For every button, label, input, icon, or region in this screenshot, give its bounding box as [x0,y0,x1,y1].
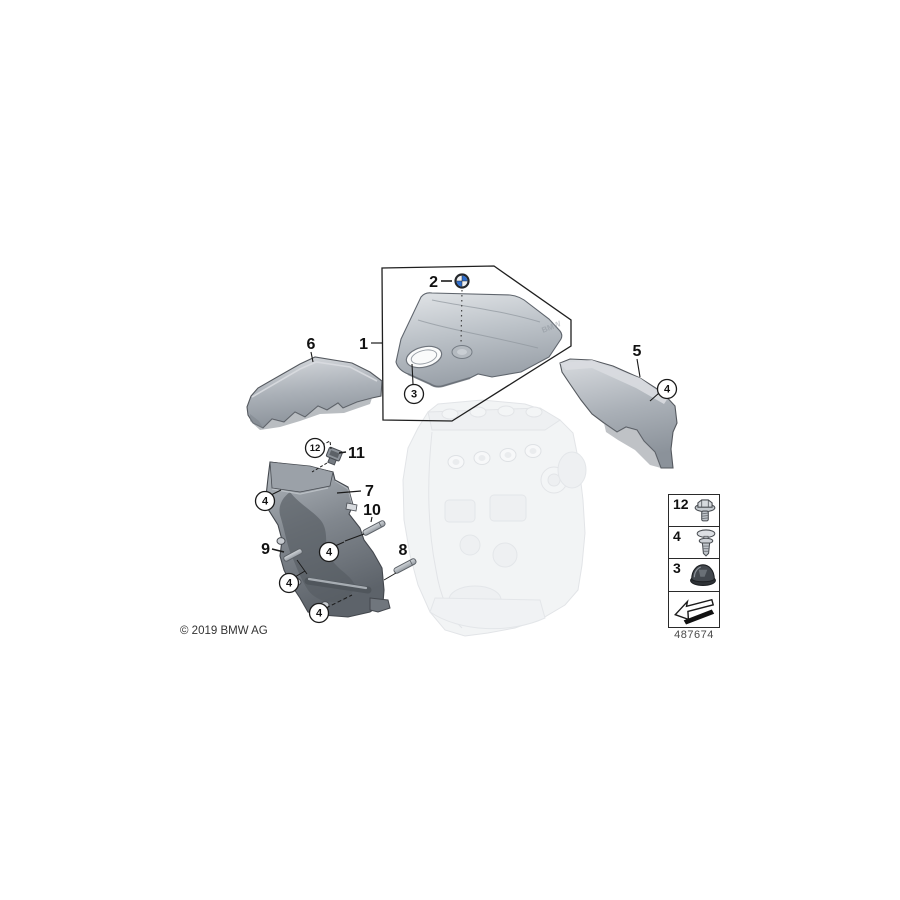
callout-4: 4 [262,496,269,508]
callout-2: 2 [429,274,438,291]
leader-line-5 [637,359,640,377]
callout-11: 11 [348,445,365,462]
callout-8: 8 [399,542,408,559]
right-acoustic-cover-part-5 [560,359,677,468]
bmw-roundel-icon [454,273,469,288]
direction-arrow-icon [671,595,717,625]
legend-row-arrow [669,592,719,626]
callout-5: 5 [633,343,642,360]
callout-1: 1 [359,336,368,353]
callout-12: 12 [310,443,321,454]
exploded-parts-drawing: 1 BMW 2 3 6 5 4 [0,0,900,900]
callout-4: 4 [316,608,323,620]
callout-4: 4 [664,384,671,396]
copyright-text: © 2019 BMW AG [180,625,268,637]
left-acoustic-cover-part-6 [247,357,382,430]
diagram-number: 487674 [660,629,728,641]
hex-bolt-icon [693,497,717,524]
callout-3: 3 [411,389,417,401]
engine-block-background [403,400,586,636]
callout-6: 6 [307,336,316,353]
legend-row-rivet: 4 [669,527,719,559]
legend-number: 12 [673,496,689,512]
fasteners-legend: 12 4 [668,494,720,628]
callout-4: 4 [326,547,333,559]
legend-number: 4 [673,528,681,544]
rubber-grommet-icon [689,561,717,587]
callout-7: 7 [365,483,374,500]
legend-row-bolt: 12 [669,495,719,527]
leader-line-8 [384,573,396,580]
stud-pin-part-10 [362,520,386,536]
callout-4: 4 [286,578,293,590]
callout-10: 10 [363,502,381,519]
parts-diagram-page: 1 BMW 2 3 6 5 4 [0,0,900,900]
legend-number: 3 [673,560,681,576]
expansion-rivet-icon [695,529,717,558]
engine-cover-part: BMW [396,293,563,387]
callout-9: 9 [261,541,270,558]
legend-row-grommet: 3 [669,559,719,591]
leader-line-11 [339,452,346,453]
